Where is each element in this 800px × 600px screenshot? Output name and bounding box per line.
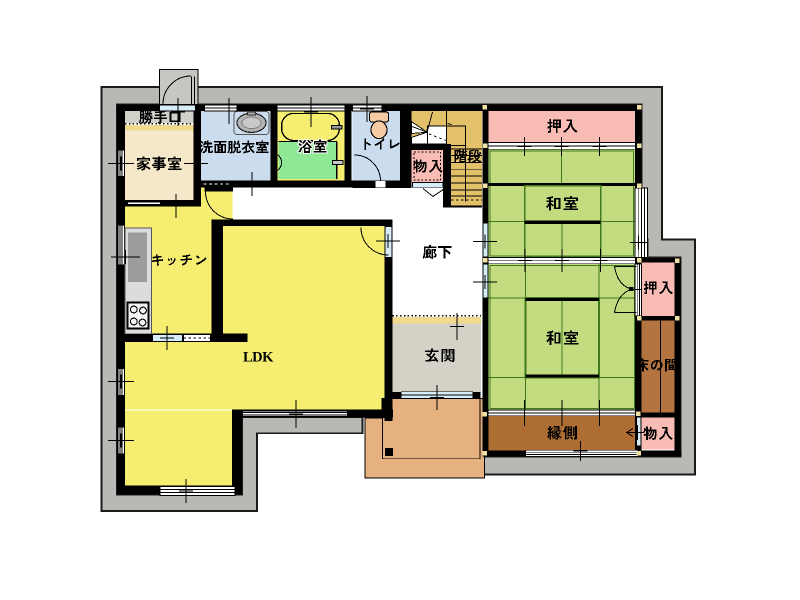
svg-text:LDK: LDK [243, 350, 274, 366]
